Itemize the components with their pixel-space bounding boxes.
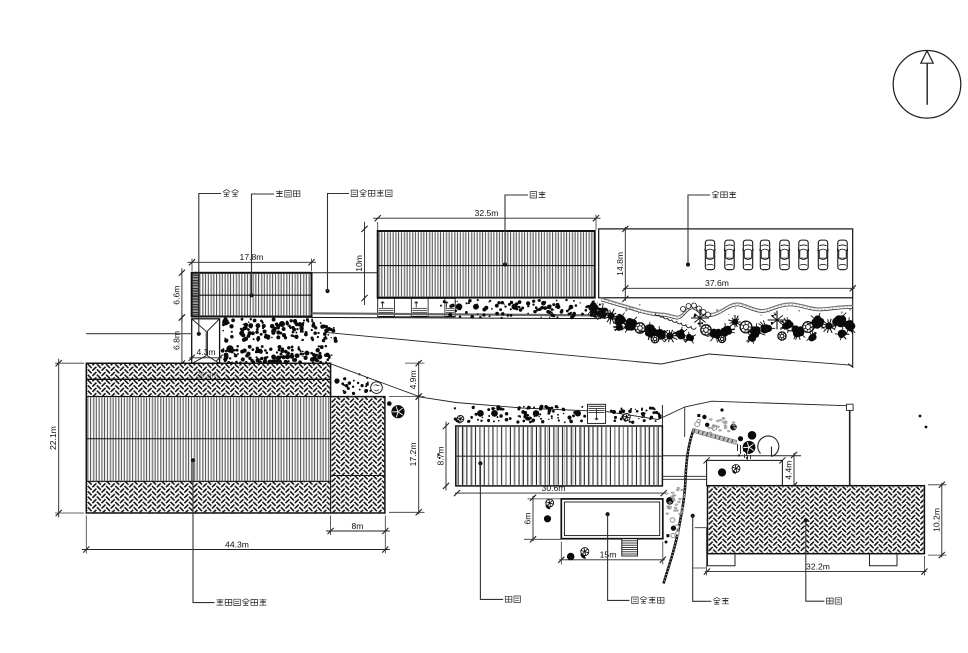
svg-text:26.3m: 26.3m xyxy=(196,371,219,380)
svg-text:6.6m: 6.6m xyxy=(171,286,181,305)
svg-text:10.2m: 10.2m xyxy=(931,508,941,532)
svg-text:10m: 10m xyxy=(354,255,364,272)
svg-text:4.9m: 4.9m xyxy=(408,370,418,389)
svg-text:37.6m: 37.6m xyxy=(705,278,729,288)
svg-text:32.5m: 32.5m xyxy=(475,208,499,218)
svg-text:22.1m: 22.1m xyxy=(48,426,58,450)
svg-text:32.2m: 32.2m xyxy=(806,561,830,571)
svg-text:14.8m: 14.8m xyxy=(615,252,625,276)
svg-text:4.3m: 4.3m xyxy=(196,347,215,357)
svg-text:4.4m: 4.4m xyxy=(784,461,794,480)
svg-text:30.6m: 30.6m xyxy=(542,483,566,493)
svg-text:44.3m: 44.3m xyxy=(225,539,249,549)
svg-text:6m: 6m xyxy=(523,513,533,525)
svg-text:8.7m: 8.7m xyxy=(436,446,446,465)
svg-text:8m: 8m xyxy=(352,521,364,531)
svg-text:17.2m: 17.2m xyxy=(408,443,418,467)
